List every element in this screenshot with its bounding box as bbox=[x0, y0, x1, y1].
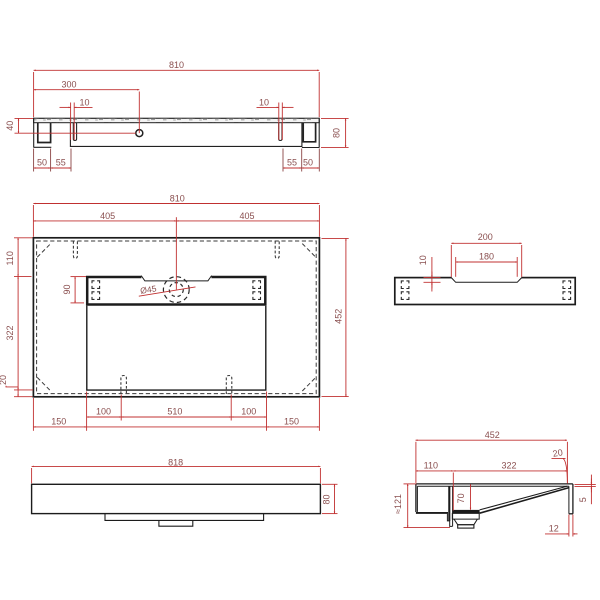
svg-text:110: 110 bbox=[5, 251, 15, 265]
svg-text:150: 150 bbox=[51, 417, 66, 427]
svg-text:50: 50 bbox=[303, 158, 313, 168]
svg-text:405: 405 bbox=[100, 211, 115, 221]
svg-text:12: 12 bbox=[549, 524, 559, 534]
svg-text:150: 150 bbox=[284, 417, 299, 427]
svg-text:452: 452 bbox=[485, 430, 500, 440]
svg-text:20: 20 bbox=[0, 375, 8, 385]
svg-text:110: 110 bbox=[424, 461, 438, 471]
svg-text:10: 10 bbox=[259, 97, 269, 107]
svg-text:90: 90 bbox=[62, 284, 72, 294]
svg-text:100: 100 bbox=[241, 406, 256, 416]
svg-text:40: 40 bbox=[5, 121, 15, 131]
svg-text:300: 300 bbox=[61, 80, 76, 90]
svg-text:50: 50 bbox=[37, 158, 47, 168]
svg-text:322: 322 bbox=[5, 325, 15, 340]
svg-text:100: 100 bbox=[96, 406, 111, 416]
svg-text:200: 200 bbox=[478, 232, 493, 242]
svg-text:405: 405 bbox=[239, 211, 254, 221]
svg-text:80: 80 bbox=[332, 128, 342, 138]
svg-text:818: 818 bbox=[168, 457, 183, 467]
svg-text:10: 10 bbox=[79, 97, 89, 107]
svg-text:20: 20 bbox=[552, 447, 564, 459]
svg-text:80: 80 bbox=[322, 494, 332, 504]
svg-text:5: 5 bbox=[578, 497, 588, 502]
svg-text:322: 322 bbox=[501, 461, 516, 471]
svg-text:810: 810 bbox=[170, 193, 185, 203]
svg-text:10: 10 bbox=[418, 255, 428, 265]
svg-text:70: 70 bbox=[456, 493, 466, 503]
svg-text:510: 510 bbox=[167, 406, 182, 416]
svg-text:180: 180 bbox=[479, 251, 494, 261]
svg-text:55: 55 bbox=[56, 158, 66, 168]
svg-text:≈121: ≈121 bbox=[393, 494, 403, 514]
svg-text:452: 452 bbox=[334, 309, 344, 324]
svg-text:55: 55 bbox=[287, 158, 297, 168]
svg-text:810: 810 bbox=[169, 60, 184, 70]
